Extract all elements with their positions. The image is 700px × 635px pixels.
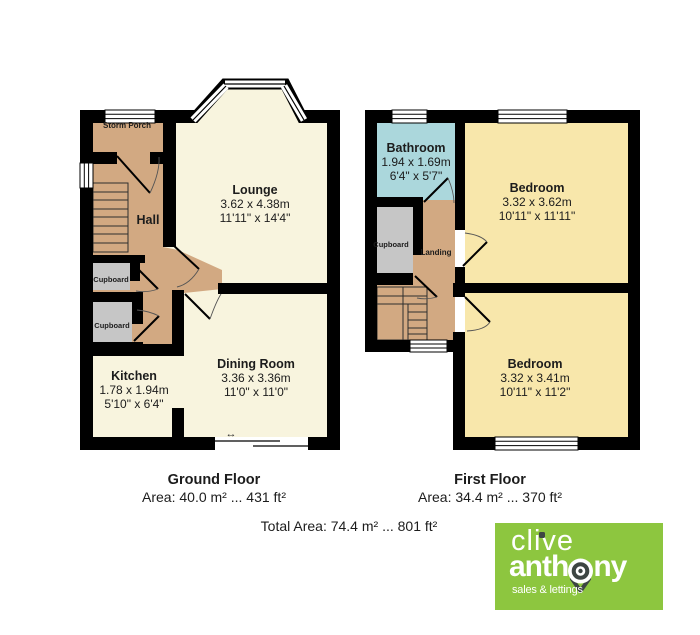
storm-porch-label: Storm Porch bbox=[103, 121, 151, 131]
bathroom-label: Bathroom 1.94 x 1.69m 6'4" x 5'7" bbox=[381, 141, 450, 183]
total-area-label: Total Area: 74.4 m² ... 801 ft² bbox=[261, 518, 438, 535]
agency-logo: clive anth ny sales & lettings bbox=[495, 523, 663, 610]
floorplan-page: ↔ bbox=[0, 0, 700, 635]
bedroom-front-label: Bedroom 3.32 x 3.62m 10'11" x 11'11" bbox=[499, 181, 576, 223]
cupboard-bottom-label: Cupboard bbox=[94, 321, 129, 331]
first-floor-cupboard-area bbox=[377, 203, 413, 273]
bedroom-back-label: Bedroom 3.32 x 3.41m 10'11" x 11'2" bbox=[500, 357, 571, 399]
sliding-door-arrow-icon: ↔ bbox=[226, 428, 237, 440]
first-floor-area: Area: 34.4 m² ... 370 ft² bbox=[418, 489, 562, 506]
hall-label: Hall bbox=[137, 213, 160, 227]
ground-floor-area: Area: 40.0 m² ... 431 ft² bbox=[142, 489, 286, 506]
logo-word-anthony: anth ny bbox=[509, 552, 626, 582]
ground-floor-title-block: Ground Floor Area: 40.0 m² ... 431 ft² bbox=[142, 472, 286, 506]
cupboard-top-label: Cupboard bbox=[93, 275, 128, 285]
kitchen-label: Kitchen 1.78 x 1.94m 5'10" x 6'4" bbox=[99, 369, 168, 411]
landing-label: Landing bbox=[420, 248, 451, 258]
ground-floor-title: Ground Floor bbox=[142, 472, 286, 489]
first-floor-title-block: First Floor Area: 34.4 m² ... 370 ft² bbox=[418, 472, 562, 506]
dining-room-label: Dining Room 3.36 x 3.36m 11'0" x 11'0" bbox=[217, 357, 295, 399]
first-floor-cupboard-label: Cupboard bbox=[373, 240, 408, 250]
logo-i-dot bbox=[539, 532, 545, 538]
first-floor-title: First Floor bbox=[418, 472, 562, 489]
logo-tagline: sales & lettings bbox=[512, 584, 583, 597]
lounge-label: Lounge 3.62 x 4.38m 11'11" x 14'4" bbox=[220, 183, 291, 225]
